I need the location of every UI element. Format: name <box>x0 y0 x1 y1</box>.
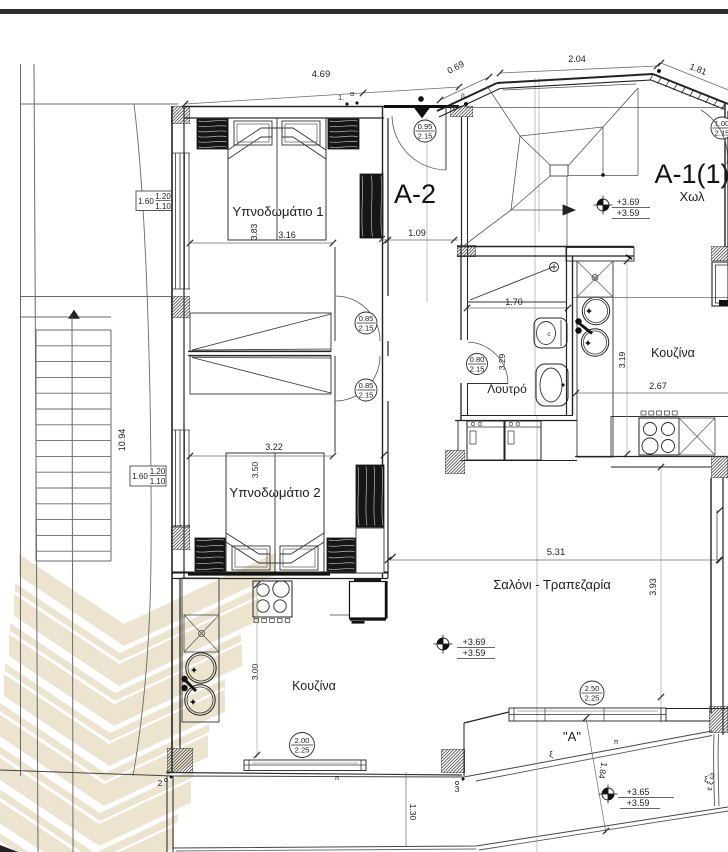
svg-text:1.10: 1.10 <box>155 202 171 211</box>
svg-text:α: α <box>166 770 170 776</box>
svg-text:0.85: 0.85 <box>359 314 374 323</box>
svg-text:2: 2 <box>158 778 163 788</box>
svg-text:3.83: 3.83 <box>249 223 259 240</box>
svg-text:+3.65: +3.65 <box>627 787 650 797</box>
svg-text:3.19: 3.19 <box>617 351 627 368</box>
svg-text:2.15: 2.15 <box>359 390 374 399</box>
svg-text:2.04: 2.04 <box>568 54 586 64</box>
svg-text:4.69: 4.69 <box>312 69 331 80</box>
svg-text:3.16: 3.16 <box>278 230 296 240</box>
svg-text:2.15: 2.15 <box>418 131 433 140</box>
svg-text:1.10: 1.10 <box>150 477 166 486</box>
svg-text:0.80: 0.80 <box>470 355 485 364</box>
svg-text:1.09: 1.09 <box>408 228 426 238</box>
svg-text:+3.59: +3.59 <box>627 798 650 808</box>
svg-text:+3.69: +3.69 <box>617 197 640 207</box>
svg-text:Κουζίνα: Κουζίνα <box>292 679 336 693</box>
svg-text:2.50: 2.50 <box>585 684 600 693</box>
svg-text:2.15: 2.15 <box>715 128 728 137</box>
svg-text:1.20: 1.20 <box>155 192 171 201</box>
svg-text:Υπνοδωμάτιο 2: Υπνοδωμάτιο 2 <box>229 485 320 500</box>
svg-text:A-2: A-2 <box>394 179 436 209</box>
svg-text:Λουτρό: Λουτρό <box>487 382 527 396</box>
svg-text:1.20: 1.20 <box>150 467 166 476</box>
svg-text:3: 3 <box>455 784 460 794</box>
svg-text:0.95: 0.95 <box>418 122 433 131</box>
svg-text:5.31: 5.31 <box>547 547 566 558</box>
svg-text:π: π <box>614 739 619 746</box>
svg-text:1.60: 1.60 <box>138 197 154 206</box>
svg-text:π: π <box>335 775 340 782</box>
svg-text:1.60: 1.60 <box>132 472 148 481</box>
svg-text:"A": "A" <box>563 729 581 744</box>
svg-text:+3.69: +3.69 <box>463 637 486 647</box>
svg-text:Χωλ: Χωλ <box>679 189 705 204</box>
svg-text:0.85: 0.85 <box>359 381 374 390</box>
svg-text:1.: 1. <box>338 95 344 102</box>
svg-text:ξ: ξ <box>549 750 553 759</box>
svg-text:2.25: 2.25 <box>295 745 310 754</box>
svg-text:1.30: 1.30 <box>408 804 418 821</box>
svg-text:Κουζίνα: Κουζίνα <box>651 346 695 360</box>
svg-text:β: β <box>461 94 465 101</box>
svg-text:2.67: 2.67 <box>649 381 667 391</box>
svg-text:Σαλόνι - Τραπεζαρία: Σαλόνι - Τραπεζαρία <box>493 577 611 592</box>
svg-text:α: α <box>350 91 354 98</box>
svg-text:ξ: ξ <box>704 775 708 784</box>
svg-text:2.25: 2.25 <box>585 693 600 702</box>
svg-text:2.00: 2.00 <box>295 736 310 745</box>
svg-text:1.00: 1.00 <box>715 119 728 128</box>
svg-text:1.70: 1.70 <box>505 297 523 307</box>
svg-text:2.15: 2.15 <box>359 323 374 332</box>
svg-text:3.93: 3.93 <box>648 578 658 596</box>
svg-text:3.22: 3.22 <box>265 442 283 452</box>
svg-text:3.00: 3.00 <box>250 663 260 680</box>
svg-text:+3.59: +3.59 <box>617 208 640 218</box>
svg-text:Υπνοδωμάτιο 1: Υπνοδωμάτιο 1 <box>232 204 323 219</box>
svg-text:3.50: 3.50 <box>250 461 260 478</box>
svg-text:A-1(1): A-1(1) <box>654 159 728 189</box>
svg-text:2.15: 2.15 <box>470 364 485 373</box>
svg-text:+3.59: +3.59 <box>463 648 486 658</box>
svg-text:10.94: 10.94 <box>117 429 127 452</box>
